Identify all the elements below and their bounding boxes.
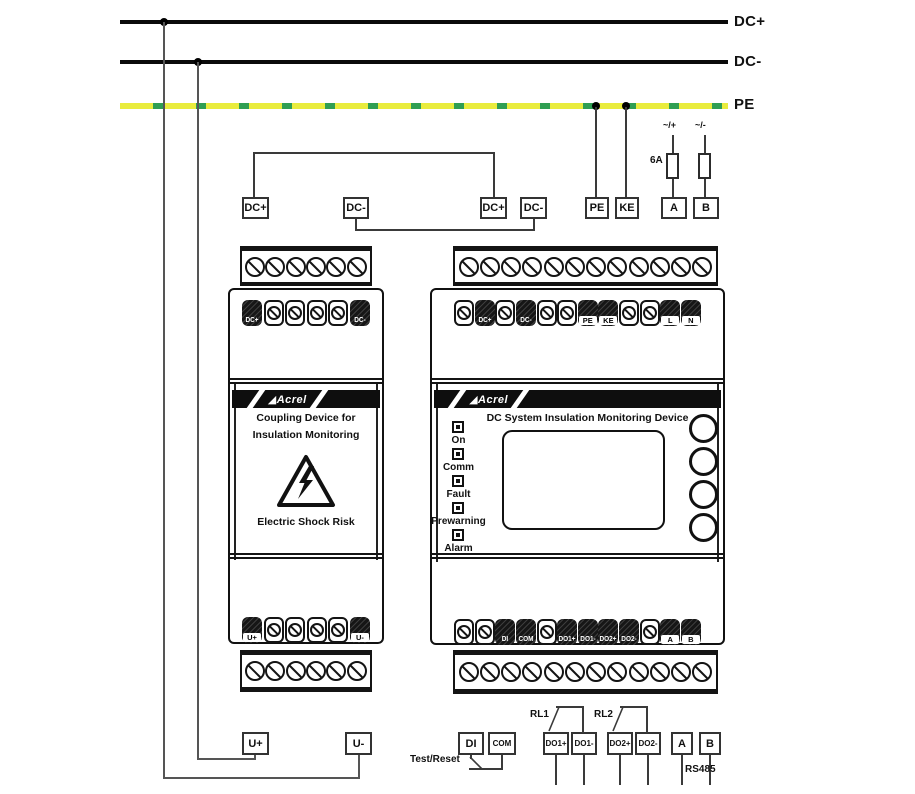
label-rs485: RS485 — [685, 764, 716, 775]
label-fuse-rating: 6A — [650, 155, 663, 166]
screw-head — [326, 257, 346, 277]
bus-dc-plus — [120, 20, 728, 24]
monitor-bottom-terminal-row: DI COM DO1+ DO1- DO2+ DO2- A B — [454, 619, 701, 645]
terminal-screw — [640, 300, 660, 326]
screw-head — [692, 662, 712, 682]
divider — [230, 557, 382, 559]
terminal-tag-dc-minus: DC- — [516, 300, 536, 326]
terminal-tag-u-minus: U- — [350, 617, 370, 643]
terminal-box-ke: KE — [615, 197, 639, 219]
terminal-screw — [537, 619, 557, 645]
terminal-strip-top-left — [240, 246, 372, 286]
screw-head — [586, 257, 606, 277]
wire-do2-plus-lead — [619, 755, 621, 785]
divider — [432, 553, 723, 555]
screw-head — [459, 257, 479, 277]
bus-label-dc-minus: DC- — [734, 53, 762, 70]
screw-head — [629, 257, 649, 277]
wire-dcplus-link — [253, 152, 495, 154]
label-rl1: RL1 — [530, 709, 549, 720]
terminal-tag-com: COM — [516, 619, 536, 645]
wire-rs485-a-lead — [681, 755, 683, 785]
terminal-box-u-plus: U+ — [242, 732, 269, 755]
wire-com-stub — [501, 755, 503, 770]
screw-head — [607, 662, 627, 682]
terminal-screw — [285, 617, 305, 643]
screw-head — [671, 662, 691, 682]
divider — [432, 378, 723, 380]
terminal-strip-bottom-right — [453, 650, 718, 694]
terminal-screw — [537, 300, 557, 326]
wire-rl1-bridge — [582, 706, 584, 733]
device-name-line2: Insulation Monitoring — [230, 429, 382, 441]
screw-head — [501, 662, 521, 682]
screw-head — [326, 661, 346, 681]
divider — [432, 382, 723, 384]
screw-head — [501, 257, 521, 277]
terminal-box-b: B — [693, 197, 719, 219]
logo-triangle-icon: ◢ — [469, 394, 478, 406]
bus-pe-earth — [120, 103, 728, 109]
divider — [230, 378, 382, 380]
terminal-tag-do1-minus: DO1- — [578, 619, 598, 645]
terminal-screw — [557, 300, 577, 326]
electric-shock-warning-icon — [275, 452, 337, 510]
terminal-tag-pe: PE — [578, 300, 598, 326]
screw-head — [544, 662, 564, 682]
terminal-box-b: B — [699, 732, 721, 755]
wire-ke-drop — [625, 107, 627, 197]
wire-dcplus-drop — [163, 22, 165, 779]
led-prewarning — [452, 502, 464, 514]
terminal-box-dc-plus: DC+ — [480, 197, 507, 219]
divider — [230, 553, 382, 555]
face-edge — [376, 384, 378, 560]
screw-head — [607, 257, 627, 277]
terminal-screw — [264, 617, 284, 643]
terminal-box-do2-plus: DO2+ — [607, 732, 633, 755]
terminal-box-di: DI — [458, 732, 484, 755]
terminal-tag-dc-minus: DC- — [350, 300, 370, 326]
screw-head — [544, 257, 564, 277]
wire-rl2-bridge — [646, 706, 648, 733]
screw-head — [459, 662, 479, 682]
terminal-tag-dc-plus: DC+ — [475, 300, 495, 326]
led-label-comm: Comm — [411, 462, 506, 473]
wire-di-stub — [470, 755, 472, 759]
fuse-b — [698, 153, 711, 179]
led-on — [452, 421, 464, 433]
terminal-box-pe: PE — [585, 197, 609, 219]
wire-dcminus-drop — [197, 62, 199, 760]
device-button-1 — [689, 414, 718, 443]
wire-test-reset — [469, 768, 503, 770]
terminal-box-do2-minus: DO2- — [635, 732, 661, 755]
screw-head — [586, 662, 606, 682]
lcd-display — [502, 430, 665, 530]
wire-dcminus-link — [533, 219, 535, 231]
terminal-screw — [454, 300, 474, 326]
brand-band: ◢Acrel — [232, 390, 380, 408]
device-button-4 — [689, 513, 718, 542]
screw-head — [245, 661, 265, 681]
label-ac-minus: ~/- — [695, 120, 706, 130]
fuse-a — [666, 153, 679, 179]
monitoring-device: DC+ DC- PE KE L N ◢Acrel DC System Insul… — [430, 288, 725, 645]
led-comm — [452, 448, 464, 460]
wire-do1-minus-lead — [583, 755, 585, 785]
label-ac-plus: ~/+ — [663, 120, 676, 130]
wiring-diagram: DC+ DC- PE ~/+ ~/- 6A DC+ DC- DC+ DC- PE… — [0, 0, 915, 794]
face-edge — [717, 384, 719, 562]
terminal-box-u-minus: U- — [345, 732, 372, 755]
wire-u-plus-stub — [254, 755, 256, 760]
screw-head — [286, 257, 306, 277]
led-label-prewarning: Prewarning — [411, 516, 506, 527]
terminal-box-dc-plus: DC+ — [242, 197, 269, 219]
terminal-tag-l: L — [660, 300, 680, 326]
wire-do2-minus-lead — [647, 755, 649, 785]
screw-head — [565, 662, 585, 682]
terminal-box-com: COM — [488, 732, 516, 755]
screw-head — [480, 257, 500, 277]
screw-head — [306, 661, 326, 681]
screw-head — [265, 257, 285, 277]
coupling-device: DC+ DC- ◢Acrel Coupling Device for Insul… — [228, 288, 384, 644]
terminal-strip-bottom-left — [240, 650, 372, 692]
screw-head — [347, 257, 367, 277]
wire-dcminus-link — [355, 229, 535, 231]
terminal-tag-b: B — [681, 619, 701, 645]
wire-dcminus-run — [197, 758, 256, 760]
terminal-tag-n: N — [681, 300, 701, 326]
terminal-tag-do2-plus: DO2+ — [598, 619, 618, 645]
screw-head — [286, 661, 306, 681]
terminal-screw — [307, 617, 327, 643]
terminal-box-do1-minus: DO1- — [571, 732, 597, 755]
brand-band: ◢Acrel — [434, 390, 721, 408]
led-alarm — [452, 529, 464, 541]
divider — [230, 382, 382, 384]
wire-dcplus-link — [253, 152, 255, 197]
terminal-screw — [328, 617, 348, 643]
terminal-screw — [307, 300, 327, 326]
led-fault — [452, 475, 464, 487]
bus-dc-minus — [120, 60, 728, 64]
terminal-screw — [640, 619, 660, 645]
wire-rl2-bridge — [620, 706, 648, 708]
wire-dcplus-link — [493, 152, 495, 197]
terminal-box-dc-minus: DC- — [343, 197, 369, 219]
terminal-tag-ke: KE — [598, 300, 618, 326]
device-button-3 — [689, 480, 718, 509]
wire-pe-drop — [595, 107, 597, 197]
wire-rl1-bridge — [556, 706, 584, 708]
terminal-box-do1-plus: DO1+ — [543, 732, 569, 755]
monitor-top-terminal-row: DC+ DC- PE KE L N — [454, 300, 701, 326]
label-rl2: RL2 — [594, 709, 613, 720]
warning-text: Electric Shock Risk — [230, 516, 382, 528]
led-label-on: On — [411, 435, 506, 446]
label-test-reset: Test/Reset — [410, 754, 460, 765]
terminal-screw — [454, 619, 474, 645]
face-edge — [234, 384, 236, 560]
screw-head — [265, 661, 285, 681]
screw-head — [347, 661, 367, 681]
bus-label-dc-plus: DC+ — [734, 13, 765, 30]
screw-head — [565, 257, 585, 277]
screw-head — [629, 662, 649, 682]
logo-triangle-icon: ◢ — [268, 394, 277, 406]
screw-head — [480, 662, 500, 682]
terminal-screw — [495, 300, 515, 326]
bus-label-pe: PE — [734, 96, 755, 113]
screw-head — [522, 257, 542, 277]
screw-head — [671, 257, 691, 277]
screw-head — [306, 257, 326, 277]
device-title: DC System Insulation Monitoring Device — [470, 412, 705, 424]
terminal-screw — [619, 300, 639, 326]
terminal-screw — [328, 300, 348, 326]
screw-head — [245, 257, 265, 277]
terminal-screw — [264, 300, 284, 326]
wire-do1-plus-lead — [555, 755, 557, 785]
terminal-tag-u-plus: U+ — [242, 617, 262, 643]
terminal-box-a: A — [661, 197, 687, 219]
terminal-strip-top-right — [453, 246, 718, 286]
screw-head — [650, 662, 670, 682]
screw-head — [522, 662, 542, 682]
coupling-bottom-terminal-row: U+ U- — [242, 617, 370, 643]
screw-head — [650, 257, 670, 277]
screw-head — [692, 257, 712, 277]
terminal-tag-dc-plus: DC+ — [242, 300, 262, 326]
terminal-screw — [285, 300, 305, 326]
device-button-2 — [689, 447, 718, 476]
wire-dcplus-run — [163, 777, 360, 779]
brand-logo: ◢Acrel — [259, 393, 316, 406]
brand-logo: ◢Acrel — [460, 393, 517, 406]
terminal-box-dc-minus: DC- — [520, 197, 547, 219]
terminal-tag-di: DI — [495, 619, 515, 645]
terminal-tag-do2-minus: DO2- — [619, 619, 639, 645]
device-name-line1: Coupling Device for — [230, 412, 382, 424]
terminal-box-a: A — [671, 732, 693, 755]
led-label-fault: Fault — [411, 489, 506, 500]
face-edge — [436, 384, 438, 562]
terminal-screw — [475, 619, 495, 645]
divider — [432, 557, 723, 559]
wire-u-minus-stub — [358, 755, 360, 779]
terminal-tag-a: A — [660, 619, 680, 645]
coupling-top-terminal-row: DC+ DC- — [242, 300, 370, 326]
terminal-tag-do1-plus: DO1+ — [557, 619, 577, 645]
